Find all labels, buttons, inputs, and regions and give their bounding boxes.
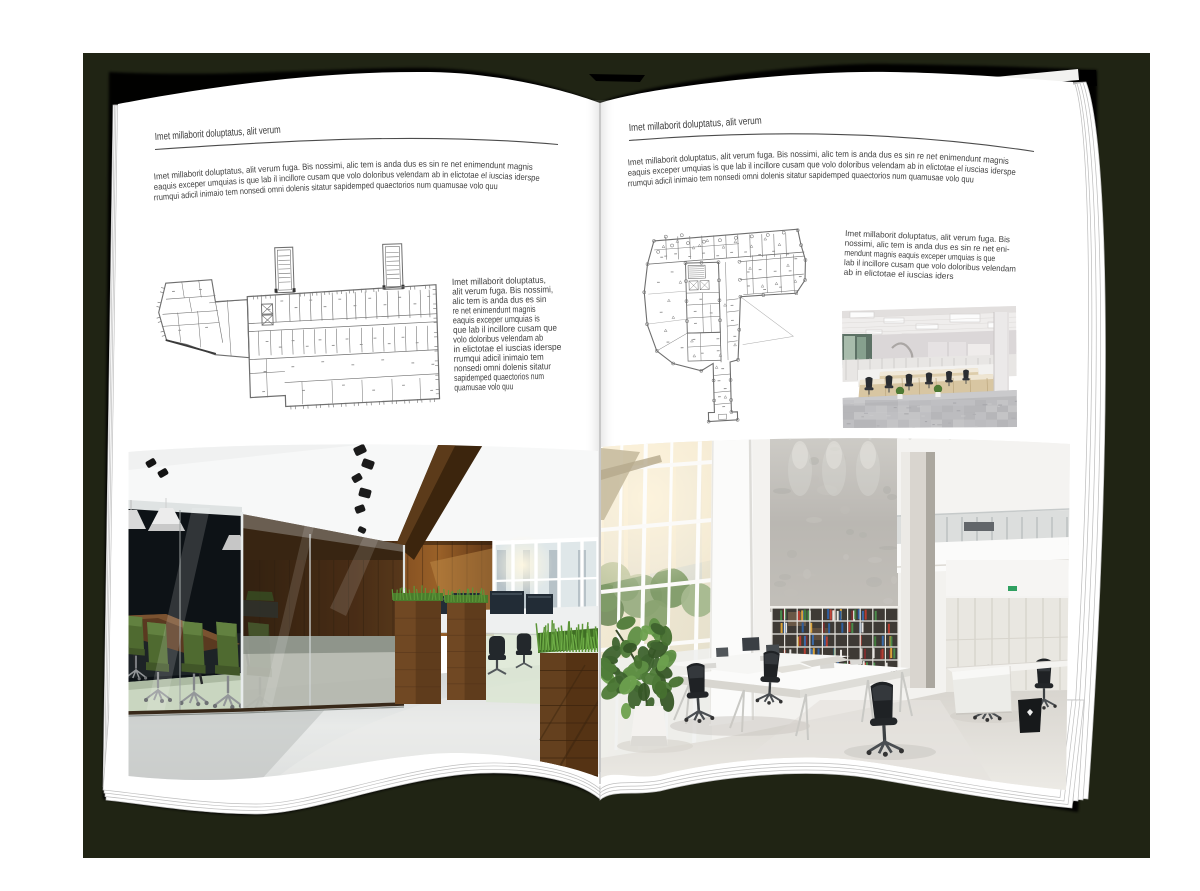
svg-text:quamusae volo quu: quamusae volo quu (454, 381, 513, 392)
